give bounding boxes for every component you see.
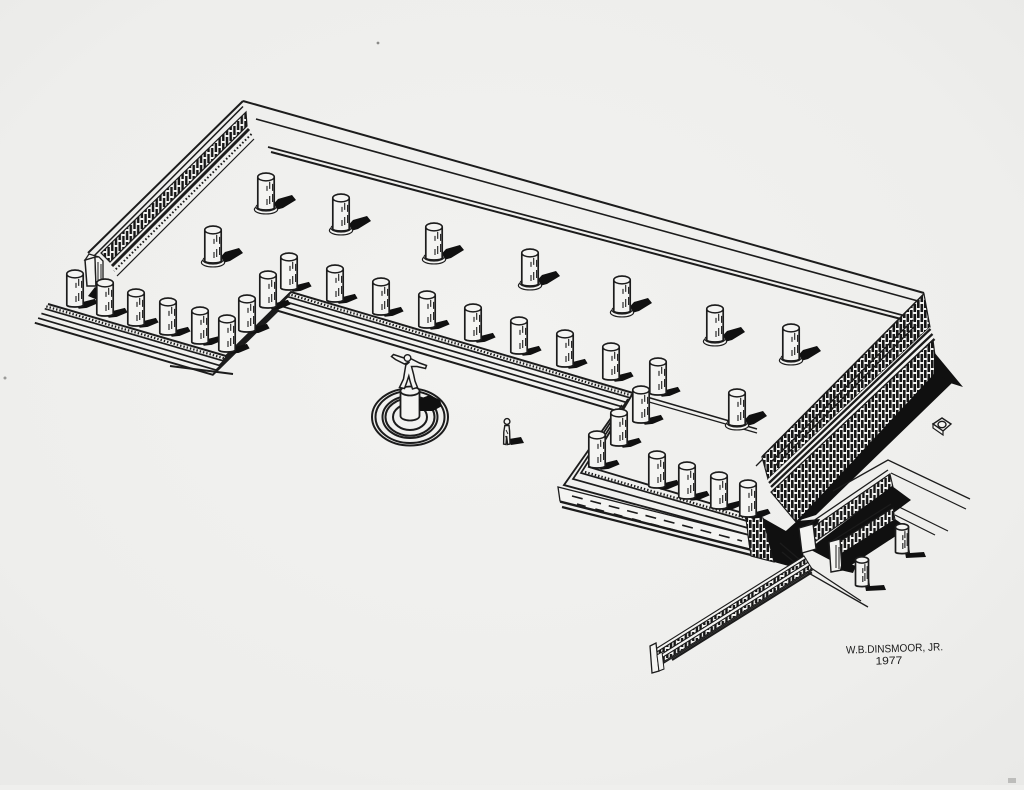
svg-text:1977: 1977 — [875, 655, 902, 668]
